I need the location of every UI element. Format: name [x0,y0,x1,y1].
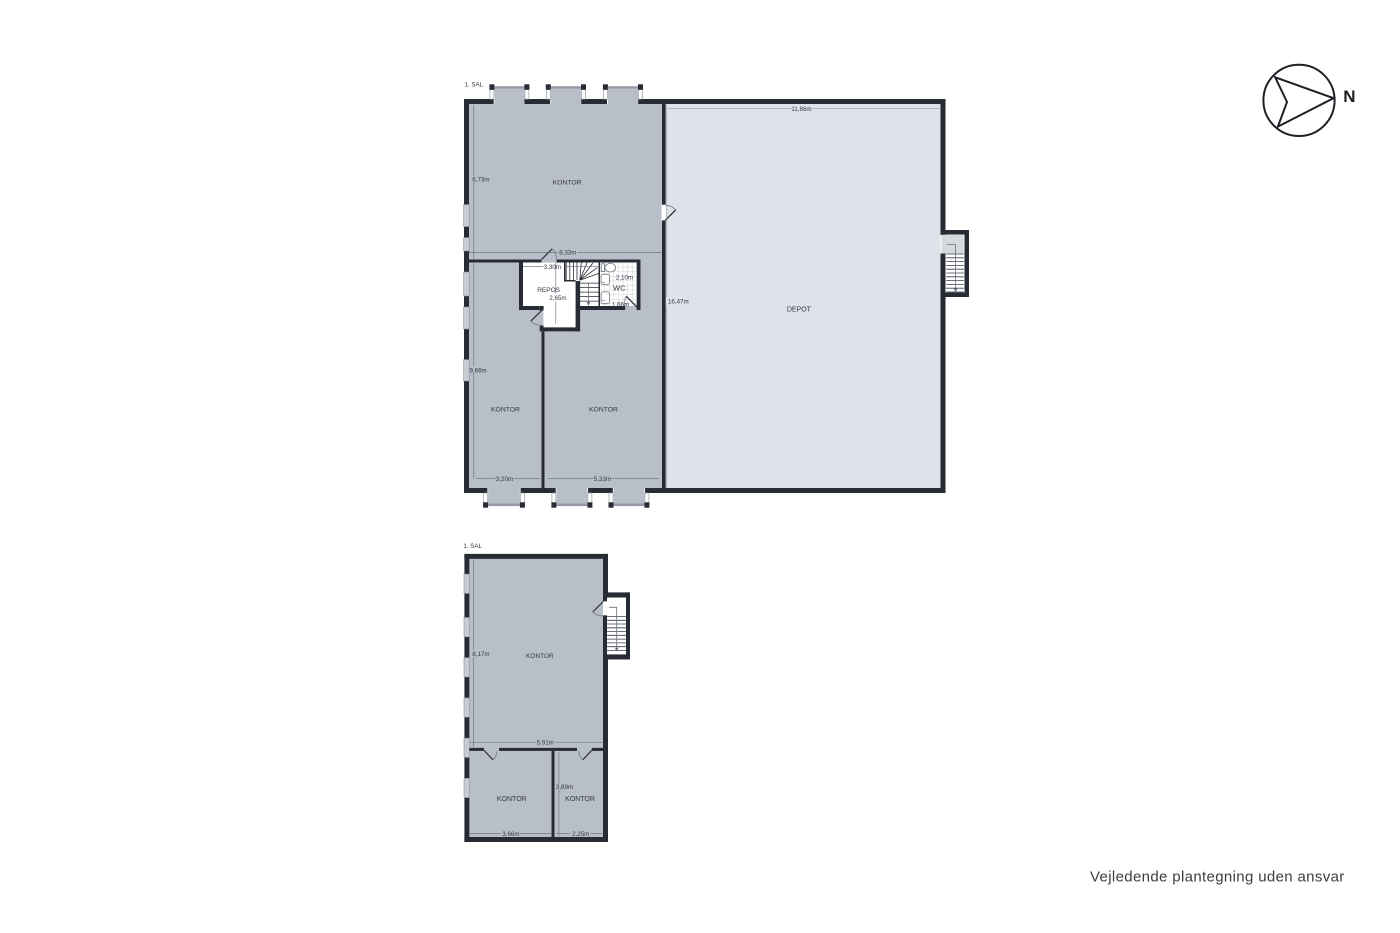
svg-text:KONTOR: KONTOR [497,796,527,803]
svg-text:2,65m: 2,65m [549,295,566,302]
svg-text:3,66m: 3,66m [502,831,519,838]
svg-text:8,33m: 8,33m [559,250,576,257]
svg-text:KONTOR: KONTOR [565,796,595,803]
svg-text:KONTOR: KONTOR [553,180,582,187]
svg-text:WC: WC [613,284,626,293]
svg-text:REPOS: REPOS [537,287,560,294]
svg-text:1. SAL: 1. SAL [465,81,484,88]
svg-text:KONTOR: KONTOR [526,653,554,660]
svg-text:11,86m: 11,86m [791,106,811,113]
svg-text:2,25m: 2,25m [572,831,589,838]
svg-text:3,30m: 3,30m [544,264,561,271]
svg-text:1,66m: 1,66m [612,302,629,309]
svg-text:Vejledende plantegning uden an: Vejledende plantegning uden ansvar [1090,868,1345,885]
svg-text:N: N [1343,87,1355,106]
svg-text:2,10m: 2,10m [616,275,633,282]
svg-text:3,89m: 3,89m [556,784,573,791]
svg-text:KONTOR: KONTOR [491,407,520,414]
svg-text:8,17m: 8,17m [472,651,489,658]
svg-text:3,20m: 3,20m [496,476,513,483]
svg-text:6,73m: 6,73m [472,176,489,183]
svg-text:9,66m: 9,66m [469,368,486,375]
svg-text:5,33m: 5,33m [594,476,611,483]
svg-text:DEPOT: DEPOT [787,306,812,313]
svg-text:1. SAL: 1. SAL [463,543,482,550]
svg-text:16,47m: 16,47m [668,299,689,306]
svg-text:5,91m: 5,91m [537,740,554,747]
svg-text:KONTOR: KONTOR [589,407,618,414]
